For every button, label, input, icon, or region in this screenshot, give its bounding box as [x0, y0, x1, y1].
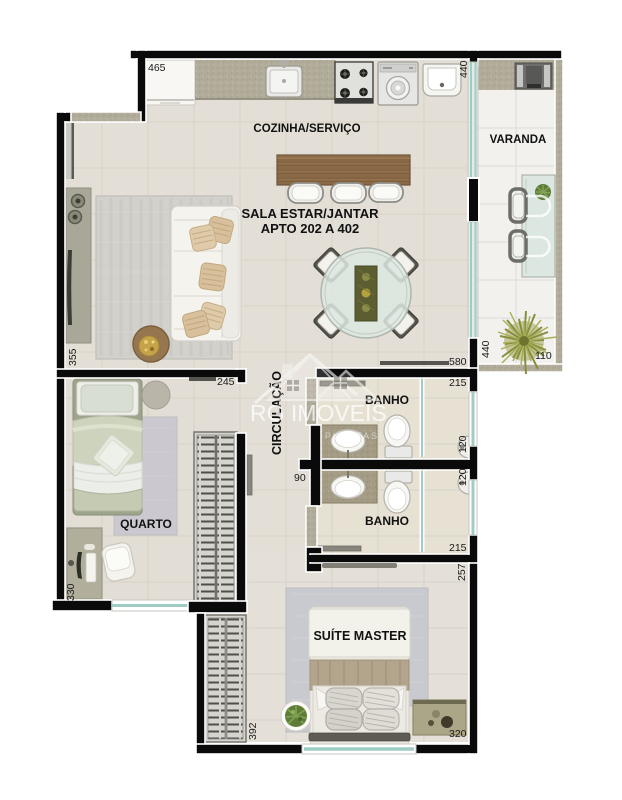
svg-text:440: 440 — [458, 60, 470, 78]
svg-text:465: 465 — [148, 62, 166, 74]
svg-text:355: 355 — [67, 348, 79, 366]
svg-text:110: 110 — [535, 350, 552, 362]
svg-text:SALA ESTAR/JANTAR: SALA ESTAR/JANTAR — [242, 206, 380, 221]
svg-text:QUARTO: QUARTO — [120, 517, 172, 531]
svg-text:SUÍTE MASTER: SUÍTE MASTER — [313, 628, 406, 643]
svg-text:COZINHA/SERVIÇO: COZINHA/SERVIÇO — [253, 123, 360, 135]
svg-text:APTO 202 A 402: APTO 202 A 402 — [261, 221, 360, 236]
svg-text:215: 215 — [449, 542, 467, 554]
svg-text:RG IMOVEIS: RG IMOVEIS — [250, 400, 387, 426]
svg-text:440: 440 — [480, 340, 492, 358]
svg-text:120: 120 — [457, 468, 469, 486]
svg-text:PLANTAS: PLANTAS — [325, 431, 379, 441]
svg-text:392: 392 — [247, 722, 259, 740]
svg-text:320: 320 — [449, 728, 467, 740]
svg-text:257: 257 — [456, 563, 468, 581]
svg-text:120: 120 — [457, 435, 469, 453]
svg-text:330: 330 — [65, 583, 77, 601]
svg-text:VARANDA: VARANDA — [490, 134, 547, 146]
svg-text:BANHO: BANHO — [365, 514, 409, 528]
svg-text:90: 90 — [294, 472, 306, 484]
svg-text:580: 580 — [449, 356, 467, 368]
svg-text:215: 215 — [449, 377, 467, 389]
svg-text:245: 245 — [217, 376, 235, 388]
